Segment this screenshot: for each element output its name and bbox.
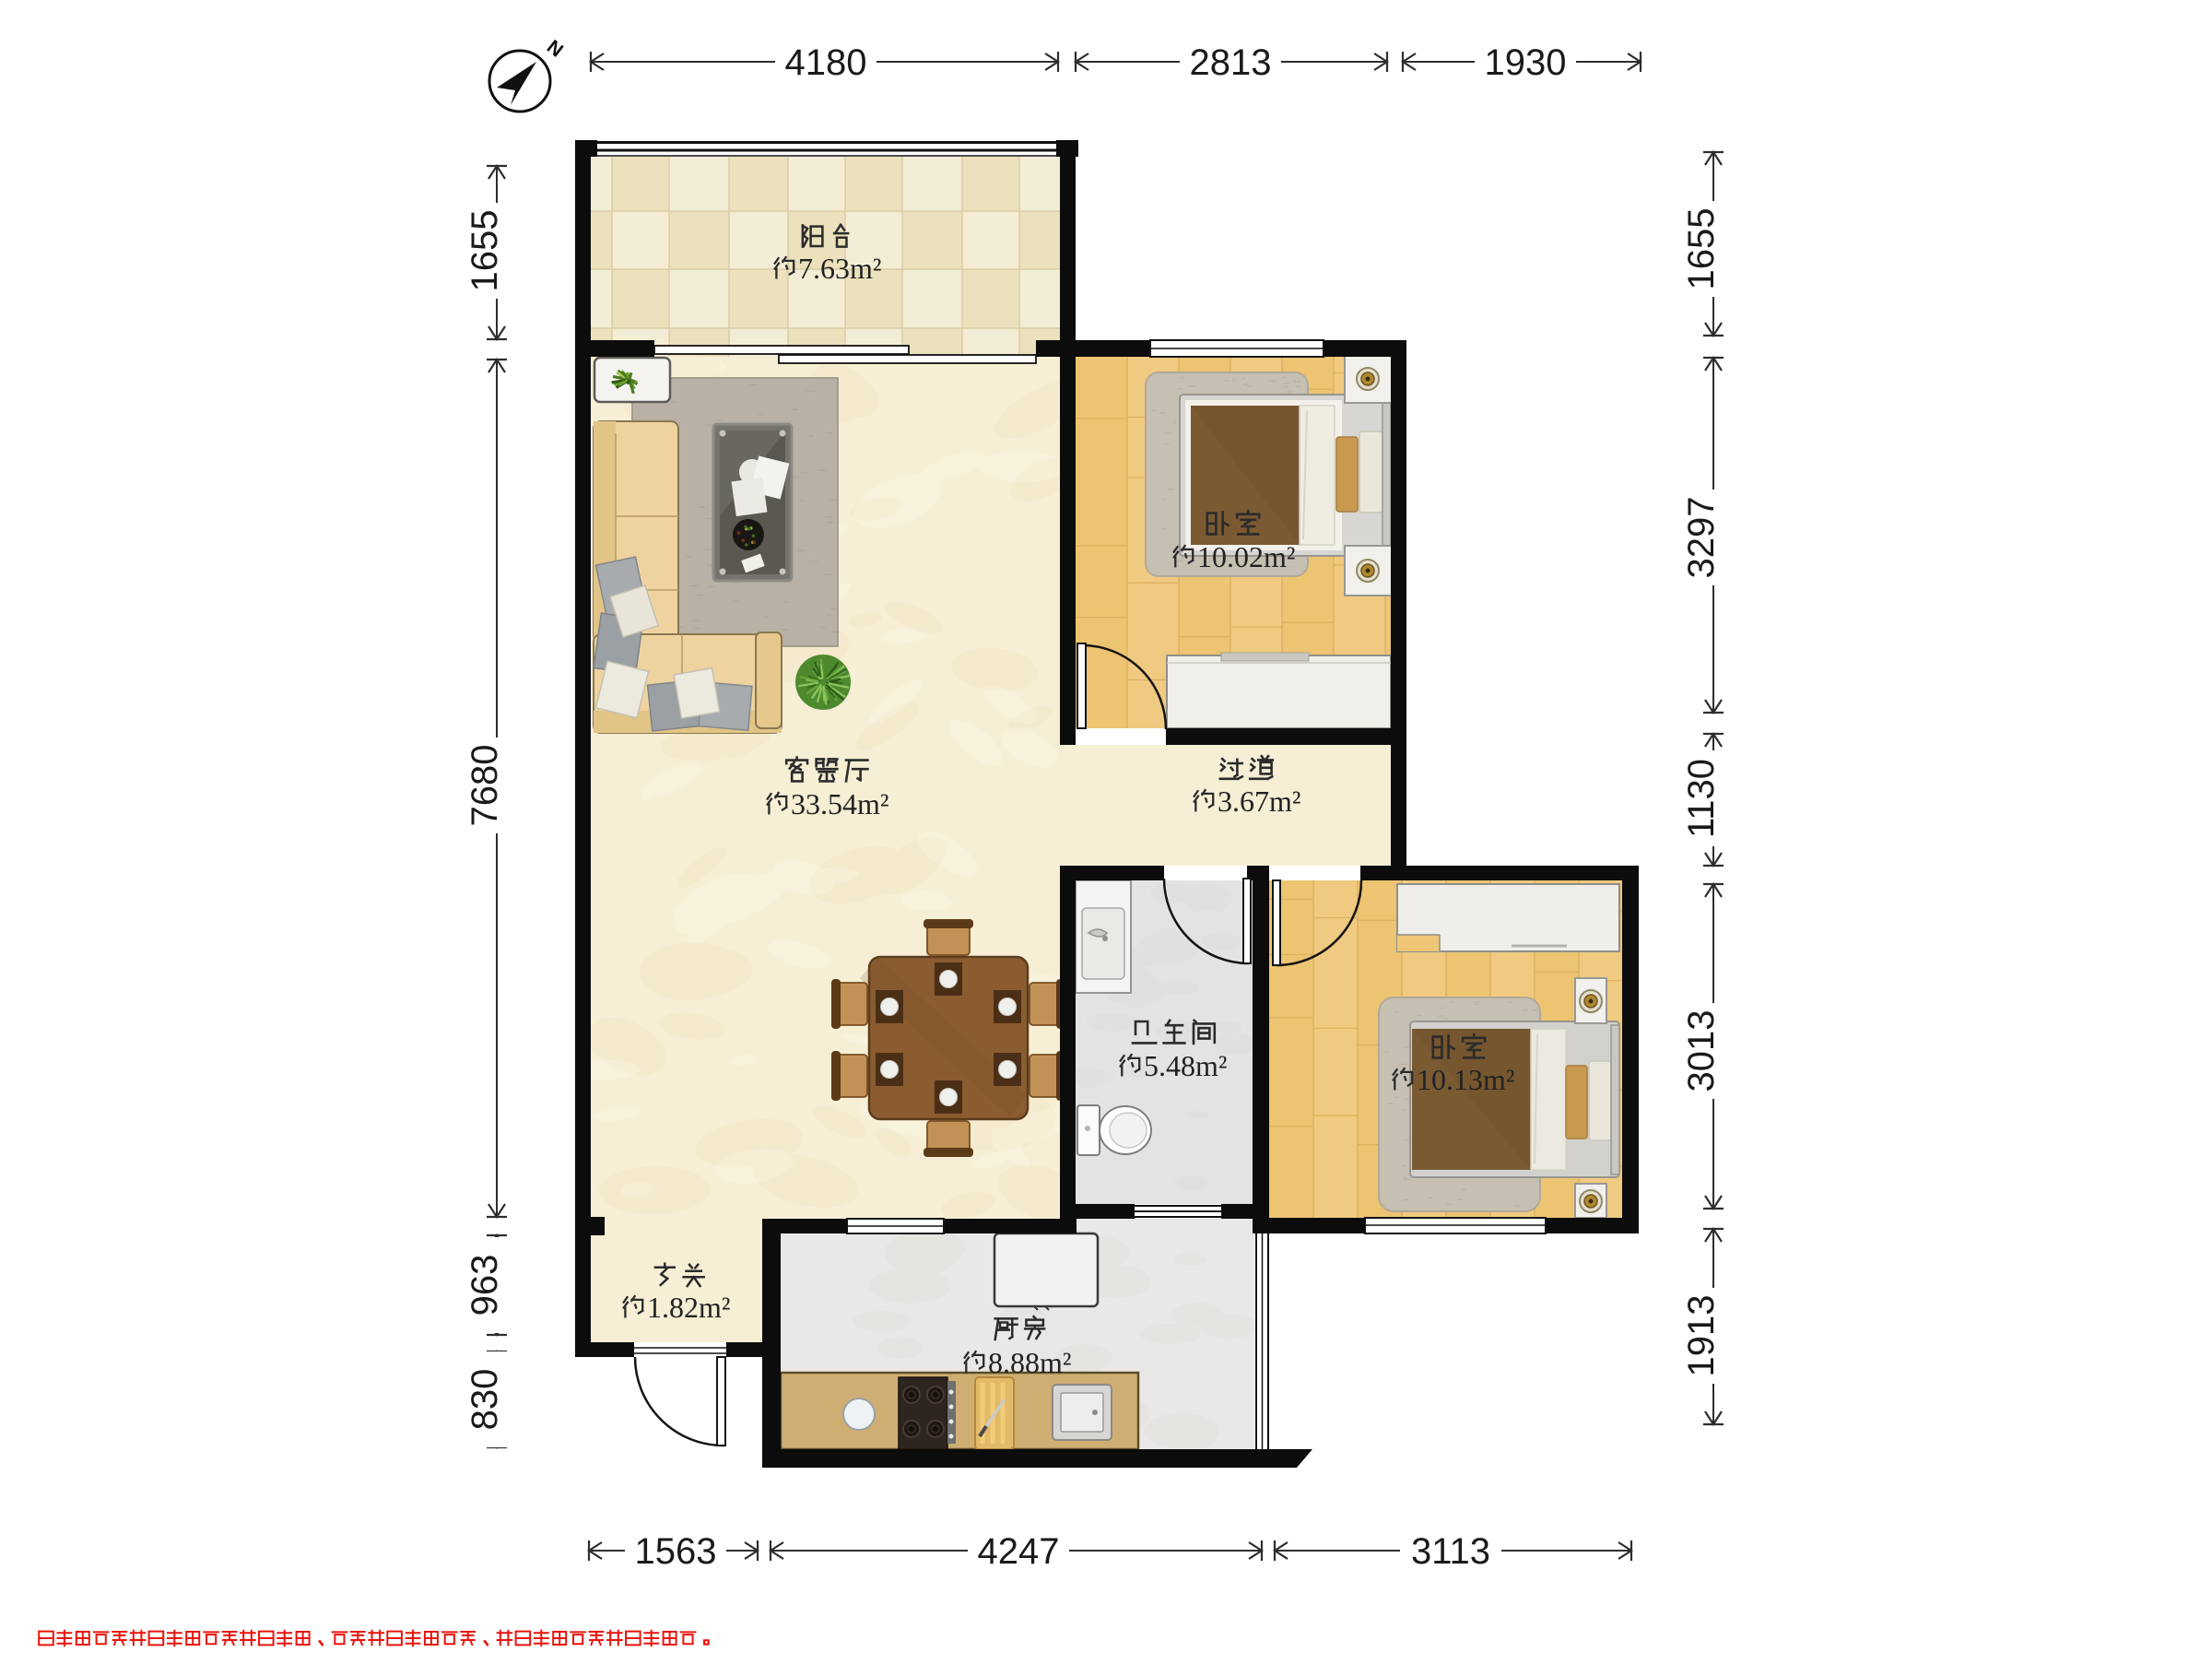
svg-text:1930: 1930 <box>1485 42 1567 83</box>
svg-text:4247: 4247 <box>978 1531 1060 1572</box>
svg-text:10.13m²: 10.13m² <box>1417 1063 1514 1096</box>
svg-text:7.63m²: 7.63m² <box>798 252 881 285</box>
svg-text:1130: 1130 <box>1681 759 1722 838</box>
svg-text:10.02m²: 10.02m² <box>1197 540 1295 573</box>
svg-text:3013: 3013 <box>1681 1010 1722 1092</box>
svg-text:963: 963 <box>465 1255 505 1316</box>
svg-text:5.48m²: 5.48m² <box>1144 1049 1227 1082</box>
svg-text:1563: 1563 <box>635 1531 717 1572</box>
svg-text:7680: 7680 <box>465 745 505 827</box>
svg-text:33.54m²: 33.54m² <box>791 787 888 820</box>
svg-text:4180: 4180 <box>785 42 867 83</box>
svg-text:830: 830 <box>465 1369 505 1431</box>
svg-text:1655: 1655 <box>465 210 505 292</box>
svg-text:3113: 3113 <box>1411 1531 1490 1572</box>
svg-text:2813: 2813 <box>1190 42 1272 83</box>
svg-text:8.88m²: 8.88m² <box>988 1346 1071 1379</box>
svg-text:3.67m²: 3.67m² <box>1218 785 1300 818</box>
svg-text:1655: 1655 <box>1681 208 1722 290</box>
svg-text:1913: 1913 <box>1681 1295 1722 1377</box>
svg-text:3297: 3297 <box>1681 497 1722 579</box>
svg-text:1.82m²: 1.82m² <box>647 1291 730 1324</box>
